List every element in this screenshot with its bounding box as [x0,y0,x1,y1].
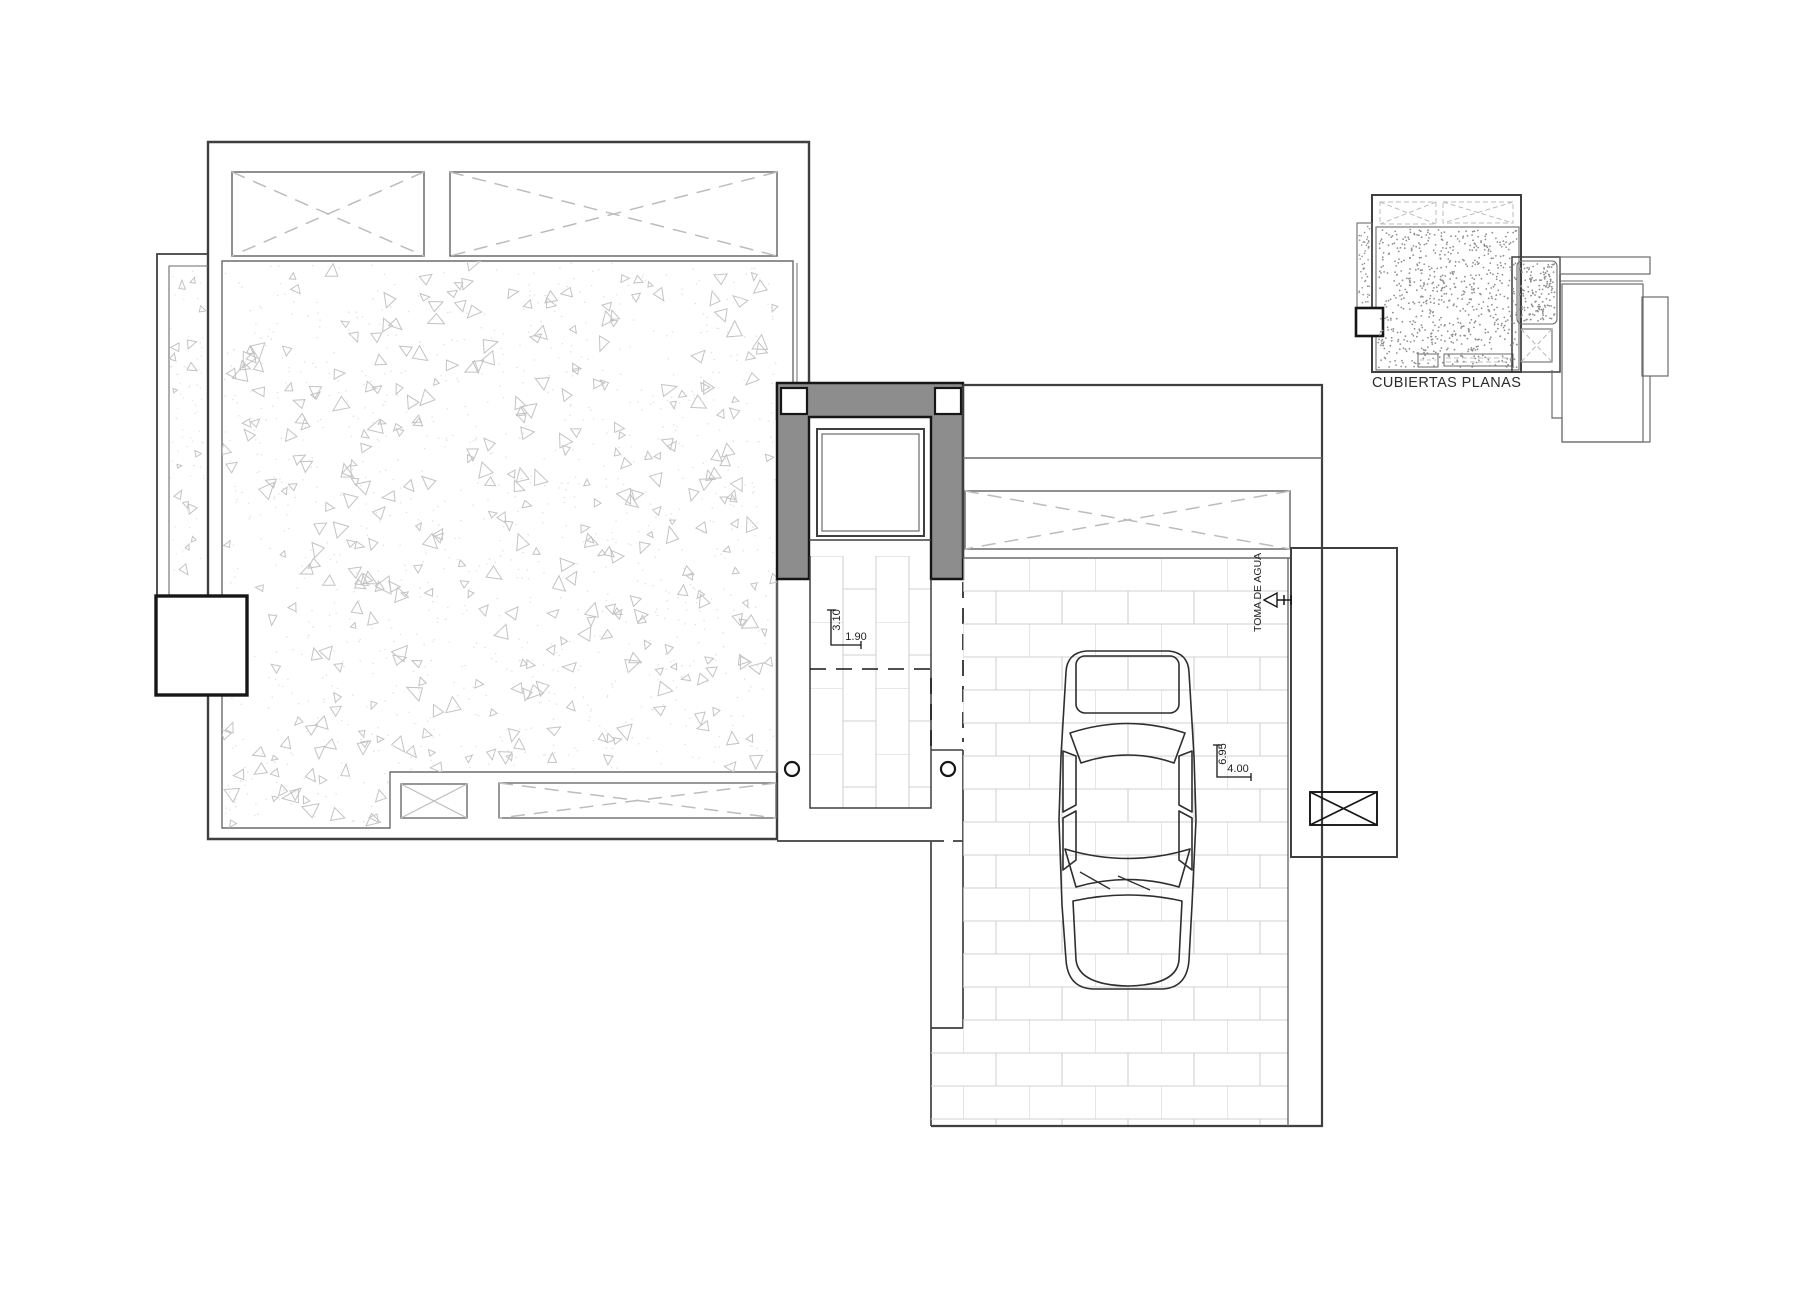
garage-paving-notch [931,1028,988,1126]
corridor-paving [810,556,931,808]
keyplan-skylights-top [1380,202,1513,224]
roof-plan-sheet: 3.10 1.90 [0,0,1800,1299]
strip-stipple-texture [170,271,207,575]
skylight-box-top-left [232,172,424,256]
skylight-box-bottom-small [401,784,467,818]
main-building [156,142,809,839]
roof-terrace-gravel [222,261,793,828]
left-planter-strip [157,254,208,596]
keyplan-chimney-box [1356,308,1383,336]
garage-skylight-box [965,491,1290,549]
keyplan-garage [1552,257,1668,442]
roof-plan-drawing: 3.10 1.90 [0,0,1800,1299]
drain-circle-right [941,762,955,776]
annex-skylight-box [1310,792,1377,825]
garage-length-dim: 6.95 [1217,743,1229,764]
garage-paving [963,558,1288,1126]
keyplan-label: CUBIERTAS PLANAS [1372,375,1521,391]
chimney-box [156,596,247,695]
gravel-stipple-texture [220,260,781,828]
keyplan-main-building [1372,195,1521,372]
water-intake-label: TOMA DE AGUA [1252,553,1264,632]
garage-right-annex [1291,548,1397,857]
stair-wall-pier-left [781,388,807,414]
lift-shaft [817,429,924,536]
corridor-width-dim: 1.90 [845,631,866,643]
garage-width-dim: 4.00 [1227,763,1248,775]
skylight-box-top-right [450,172,777,256]
building-outline [208,142,809,839]
key-plan: CUBIERTAS PLANAS [1356,195,1668,442]
stair-wall-pier-right [935,388,961,414]
corridor-length-dim: 3.10 [831,609,843,630]
skylight-box-bottom-wide [499,783,776,818]
garage: TOMA DE AGUA 6.95 4.00 [931,385,1397,1126]
stair-core [777,383,963,579]
keyplan-stipple-texture [1358,226,1555,368]
drain-circle-left [785,762,799,776]
